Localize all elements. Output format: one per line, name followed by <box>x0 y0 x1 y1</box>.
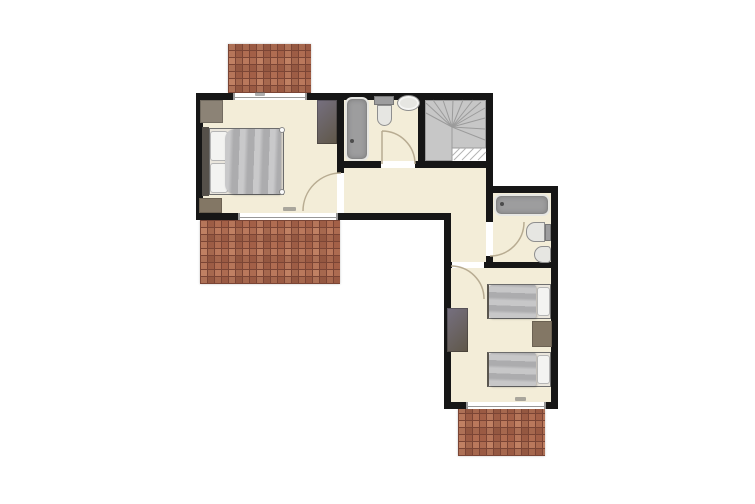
single-bed-1-duvet <box>489 285 536 318</box>
twin-dresser <box>447 308 468 352</box>
balcony-top <box>228 44 311 93</box>
toilet-top-tank <box>374 96 394 105</box>
wall-bathroom-right-top <box>493 186 558 193</box>
wall-bath-bottom-west <box>337 161 381 168</box>
wardrobe <box>317 100 337 144</box>
toilet-right-tank <box>545 224 551 241</box>
bidet-right <box>534 246 551 263</box>
chest-bottom-left <box>199 198 222 213</box>
wall-bath-stairs-divider <box>418 100 425 161</box>
stair-void-hatch <box>452 148 486 161</box>
bathtub-top <box>345 97 369 161</box>
single-bed-2-duvet <box>489 353 536 386</box>
bathtub-right-faucet <box>500 202 504 206</box>
single-bed-1-pillow <box>537 287 550 316</box>
double-bed-headboard <box>202 127 209 196</box>
dresser-top-left <box>200 100 223 123</box>
toilet-top-bowl <box>377 105 392 126</box>
double-bed-post-top <box>279 127 285 133</box>
terrace-bottom-right <box>458 409 545 456</box>
corridor-floor <box>451 213 486 262</box>
double-bed-post-bottom <box>279 189 285 195</box>
wall-bathroom-right-west-a <box>486 193 493 222</box>
double-bed-duvet <box>225 129 281 194</box>
wall-right-upper <box>486 100 493 193</box>
dimension-smudge-2 <box>283 207 296 211</box>
single-bed-2-pillow <box>537 355 550 384</box>
window-bedroom-north <box>233 93 307 100</box>
dimension-smudge-1 <box>255 92 265 96</box>
wall-right-main <box>551 193 558 409</box>
hallway-floor <box>344 168 486 213</box>
wall-stairs-bottom <box>415 161 493 168</box>
sink-top <box>397 95 420 111</box>
nightstand <box>532 321 552 347</box>
window-twin-south <box>466 402 546 409</box>
dimension-smudge-3 <box>515 397 526 401</box>
toilet-right-bowl <box>526 222 545 242</box>
terrace-bottom-left <box>200 220 340 284</box>
wall-twin-top-west <box>444 262 452 268</box>
plan-symbols-overlay <box>0 0 755 504</box>
window-bedroom-south <box>238 213 338 220</box>
bathtub-top-faucet <box>350 139 354 143</box>
floor-plan <box>0 0 755 504</box>
